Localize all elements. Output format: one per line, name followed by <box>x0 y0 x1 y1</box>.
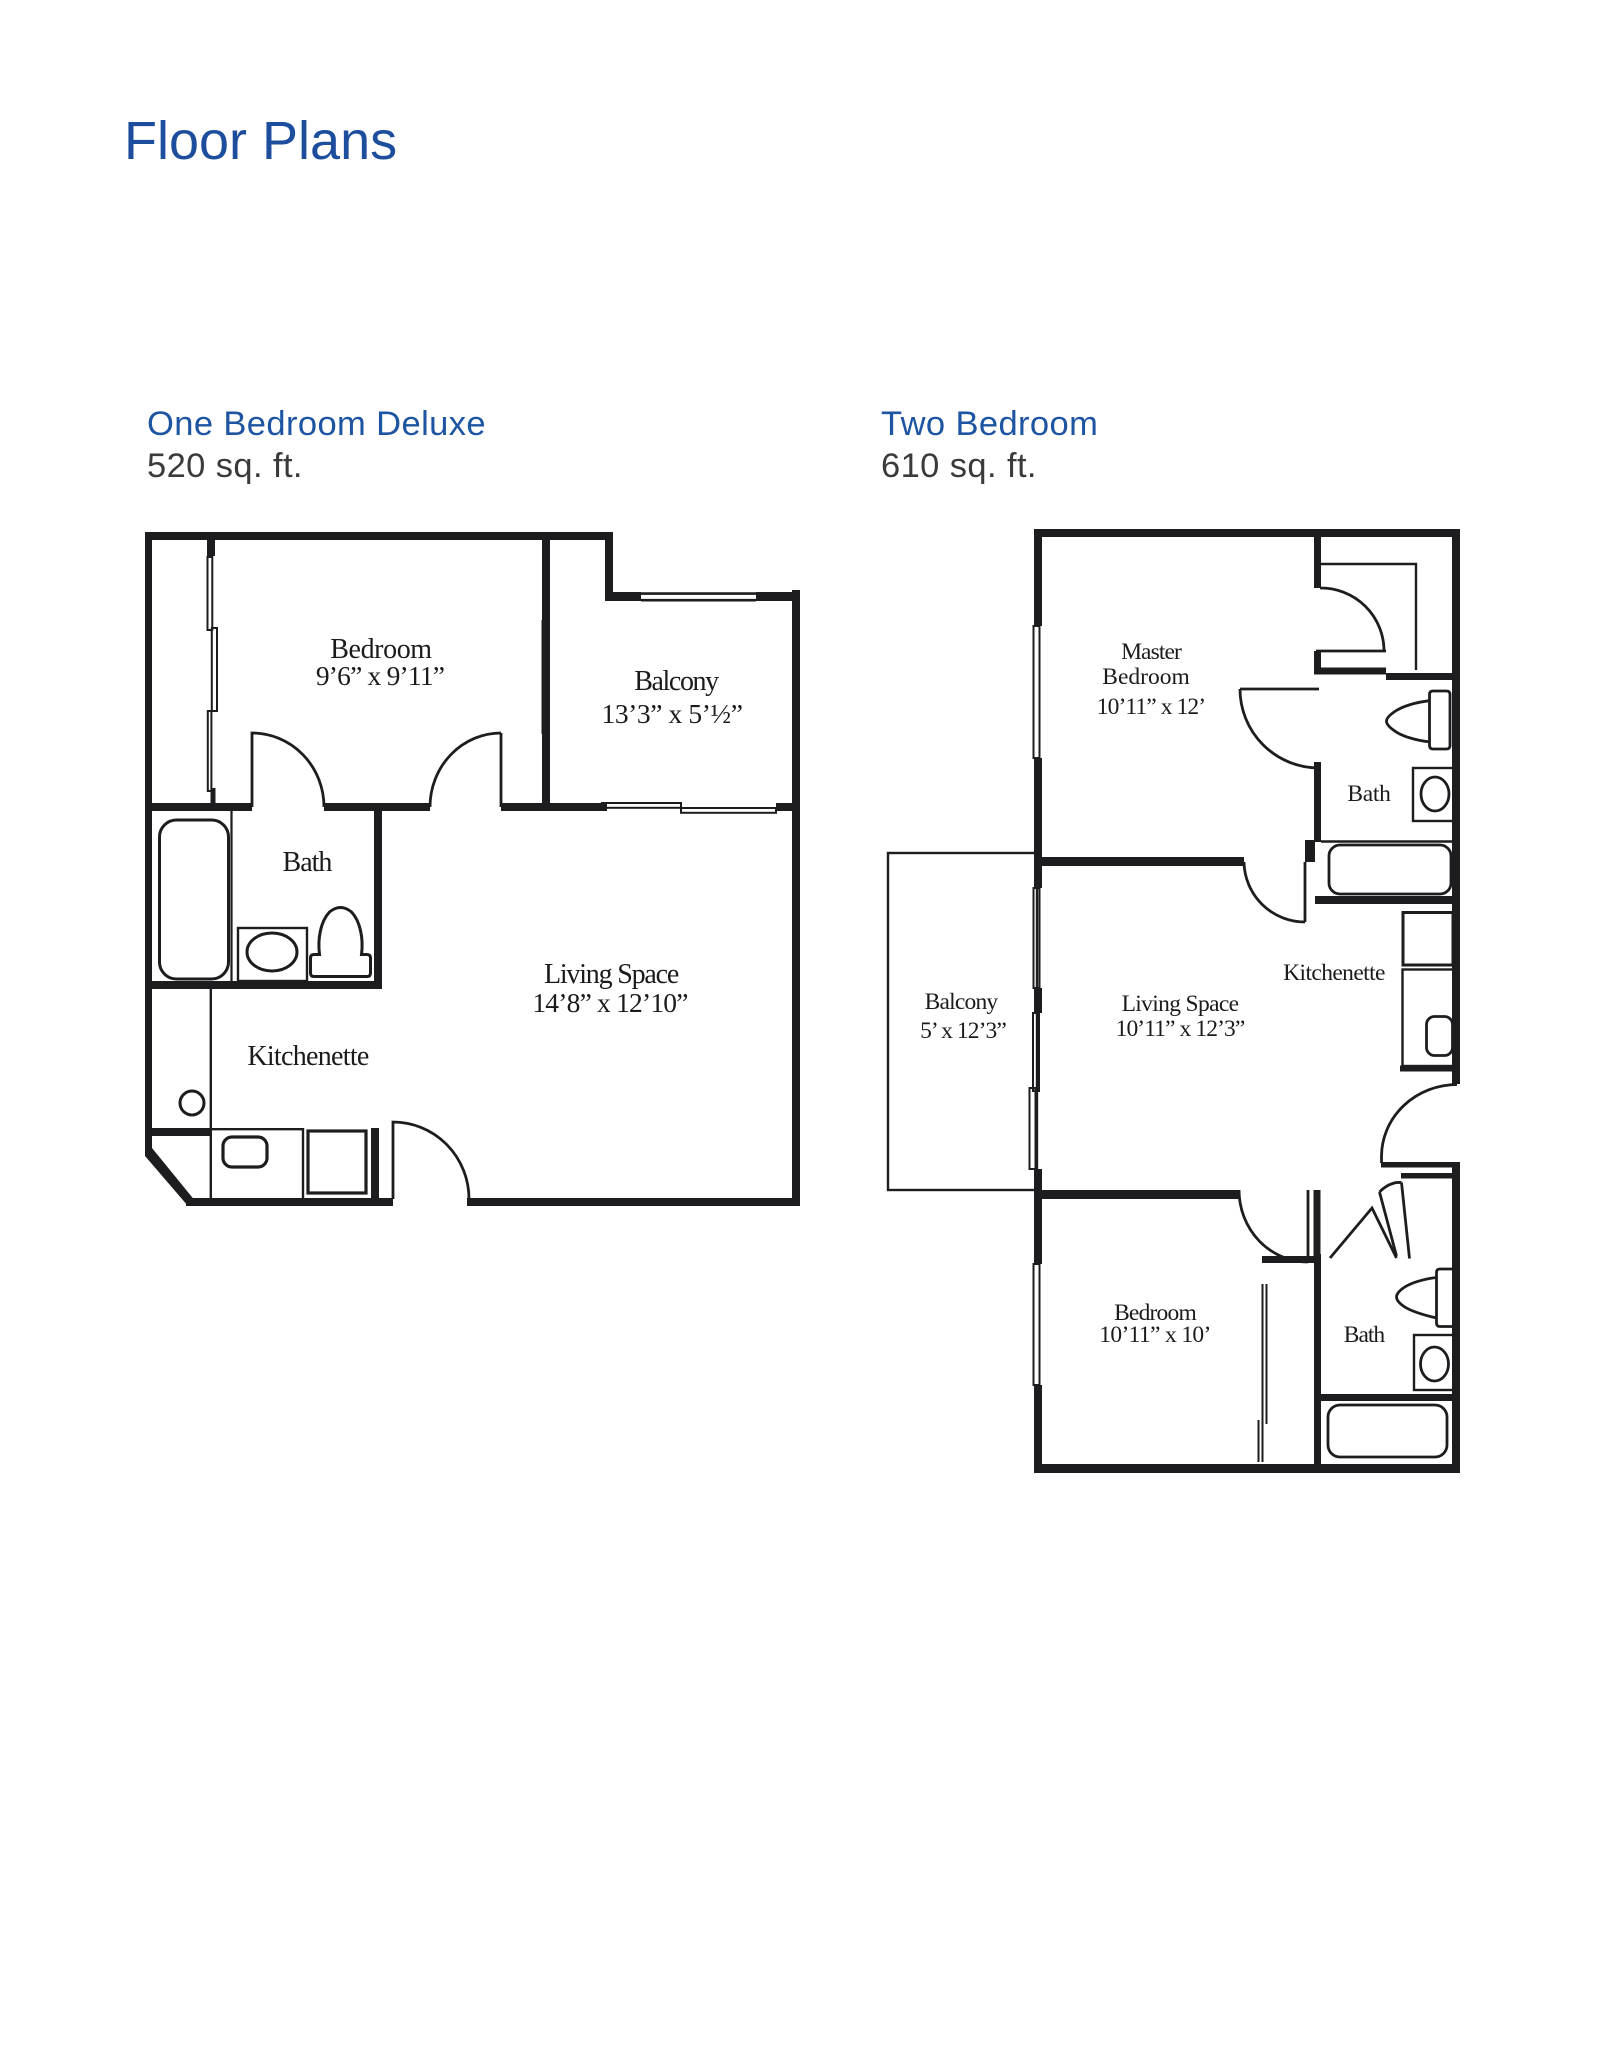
svg-text:Living Space: Living Space <box>544 959 679 990</box>
svg-text:Bath: Bath <box>283 847 333 878</box>
svg-text:Bath: Bath <box>1344 1322 1386 1348</box>
svg-text:Balcony: Balcony <box>925 989 999 1015</box>
svg-text:10’11” x 12’3”: 10’11” x 12’3” <box>1116 1016 1245 1042</box>
svg-text:Master: Master <box>1121 639 1182 665</box>
svg-text:14’8” x 12’10”: 14’8” x 12’10” <box>532 987 687 1018</box>
svg-text:Bath: Bath <box>1347 781 1391 807</box>
svg-text:Living Space: Living Space <box>1122 991 1239 1017</box>
svg-text:9’6” x 9’11”: 9’6” x 9’11” <box>316 660 444 691</box>
svg-text:Kitchenette: Kitchenette <box>1283 960 1385 986</box>
svg-text:10’11” x 12’: 10’11” x 12’ <box>1097 694 1205 720</box>
svg-text:5’ x 12’3”: 5’ x 12’3” <box>920 1018 1006 1044</box>
svg-text:Balcony: Balcony <box>634 666 719 697</box>
svg-text:Kitchenette: Kitchenette <box>247 1041 369 1072</box>
svg-text:Bedroom: Bedroom <box>1102 664 1189 690</box>
svg-text:10’11” x 10’: 10’11” x 10’ <box>1099 1322 1210 1348</box>
svg-text:13’3” x 5’½”: 13’3” x 5’½” <box>601 698 742 729</box>
